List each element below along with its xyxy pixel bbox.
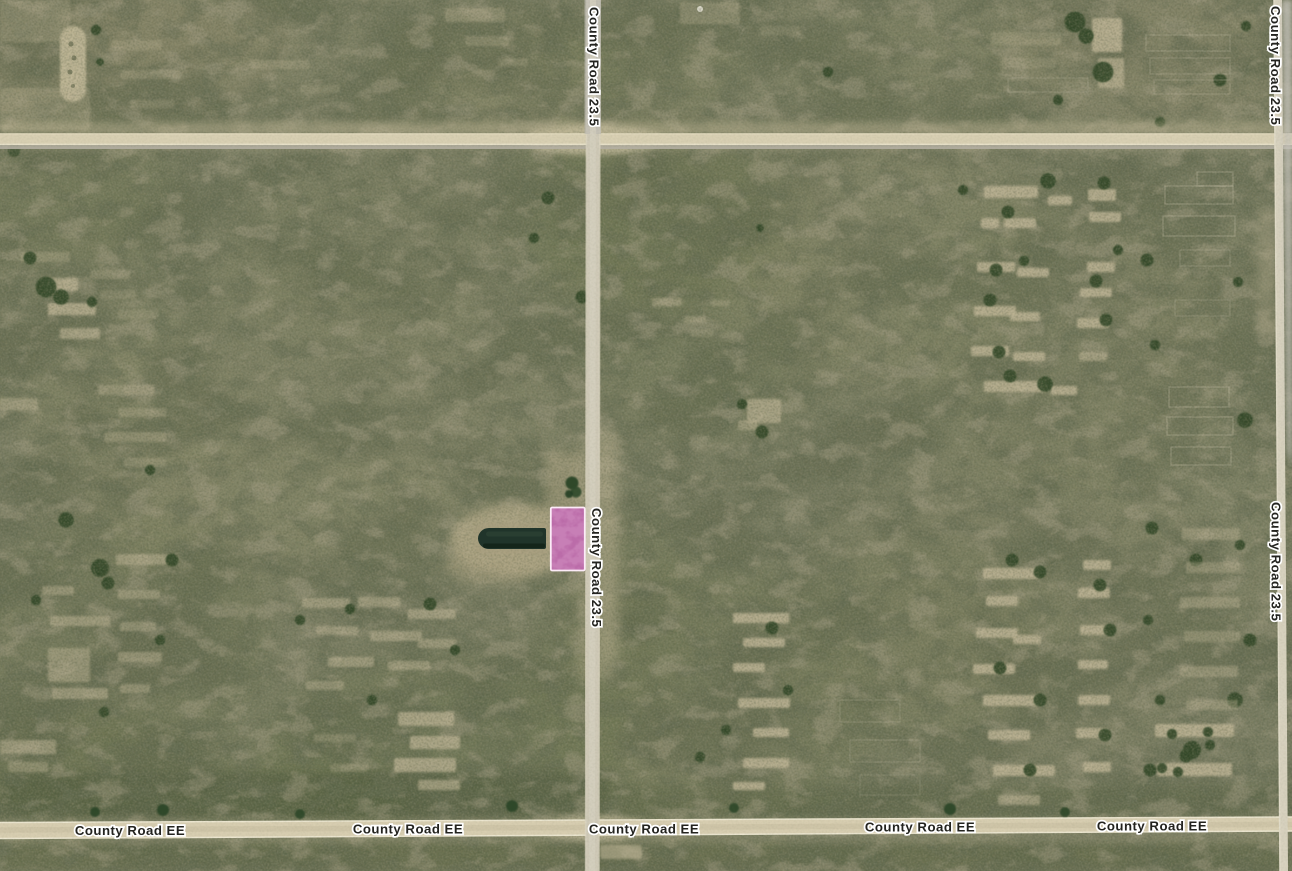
svg-text:County Road EE: County Road EE	[1097, 819, 1207, 834]
svg-text:County Road 23.5: County Road 23.5	[1269, 502, 1284, 621]
svg-text:County Road EE: County Road EE	[75, 823, 185, 838]
svg-text:County Road 23.5: County Road 23.5	[589, 508, 604, 627]
svg-text:County Road EE: County Road EE	[589, 821, 699, 836]
svg-text:County Road EE: County Road EE	[353, 822, 463, 837]
svg-text:County Road 23.5: County Road 23.5	[1268, 6, 1283, 125]
svg-text:County Road EE: County Road EE	[865, 820, 975, 835]
svg-text:County Road 23.5: County Road 23.5	[587, 7, 602, 126]
